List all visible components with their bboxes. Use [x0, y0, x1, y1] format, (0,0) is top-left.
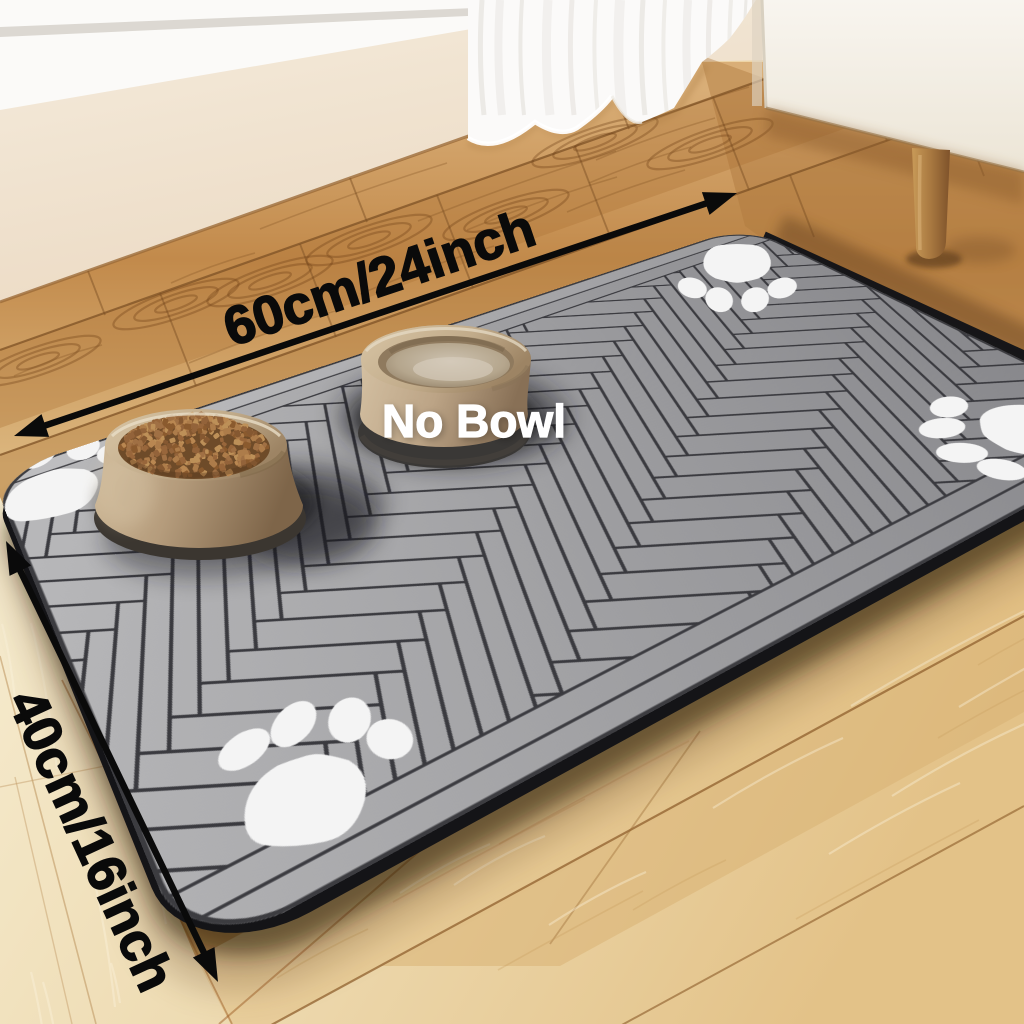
svg-text:No Bowl: No Bowl	[382, 395, 566, 447]
